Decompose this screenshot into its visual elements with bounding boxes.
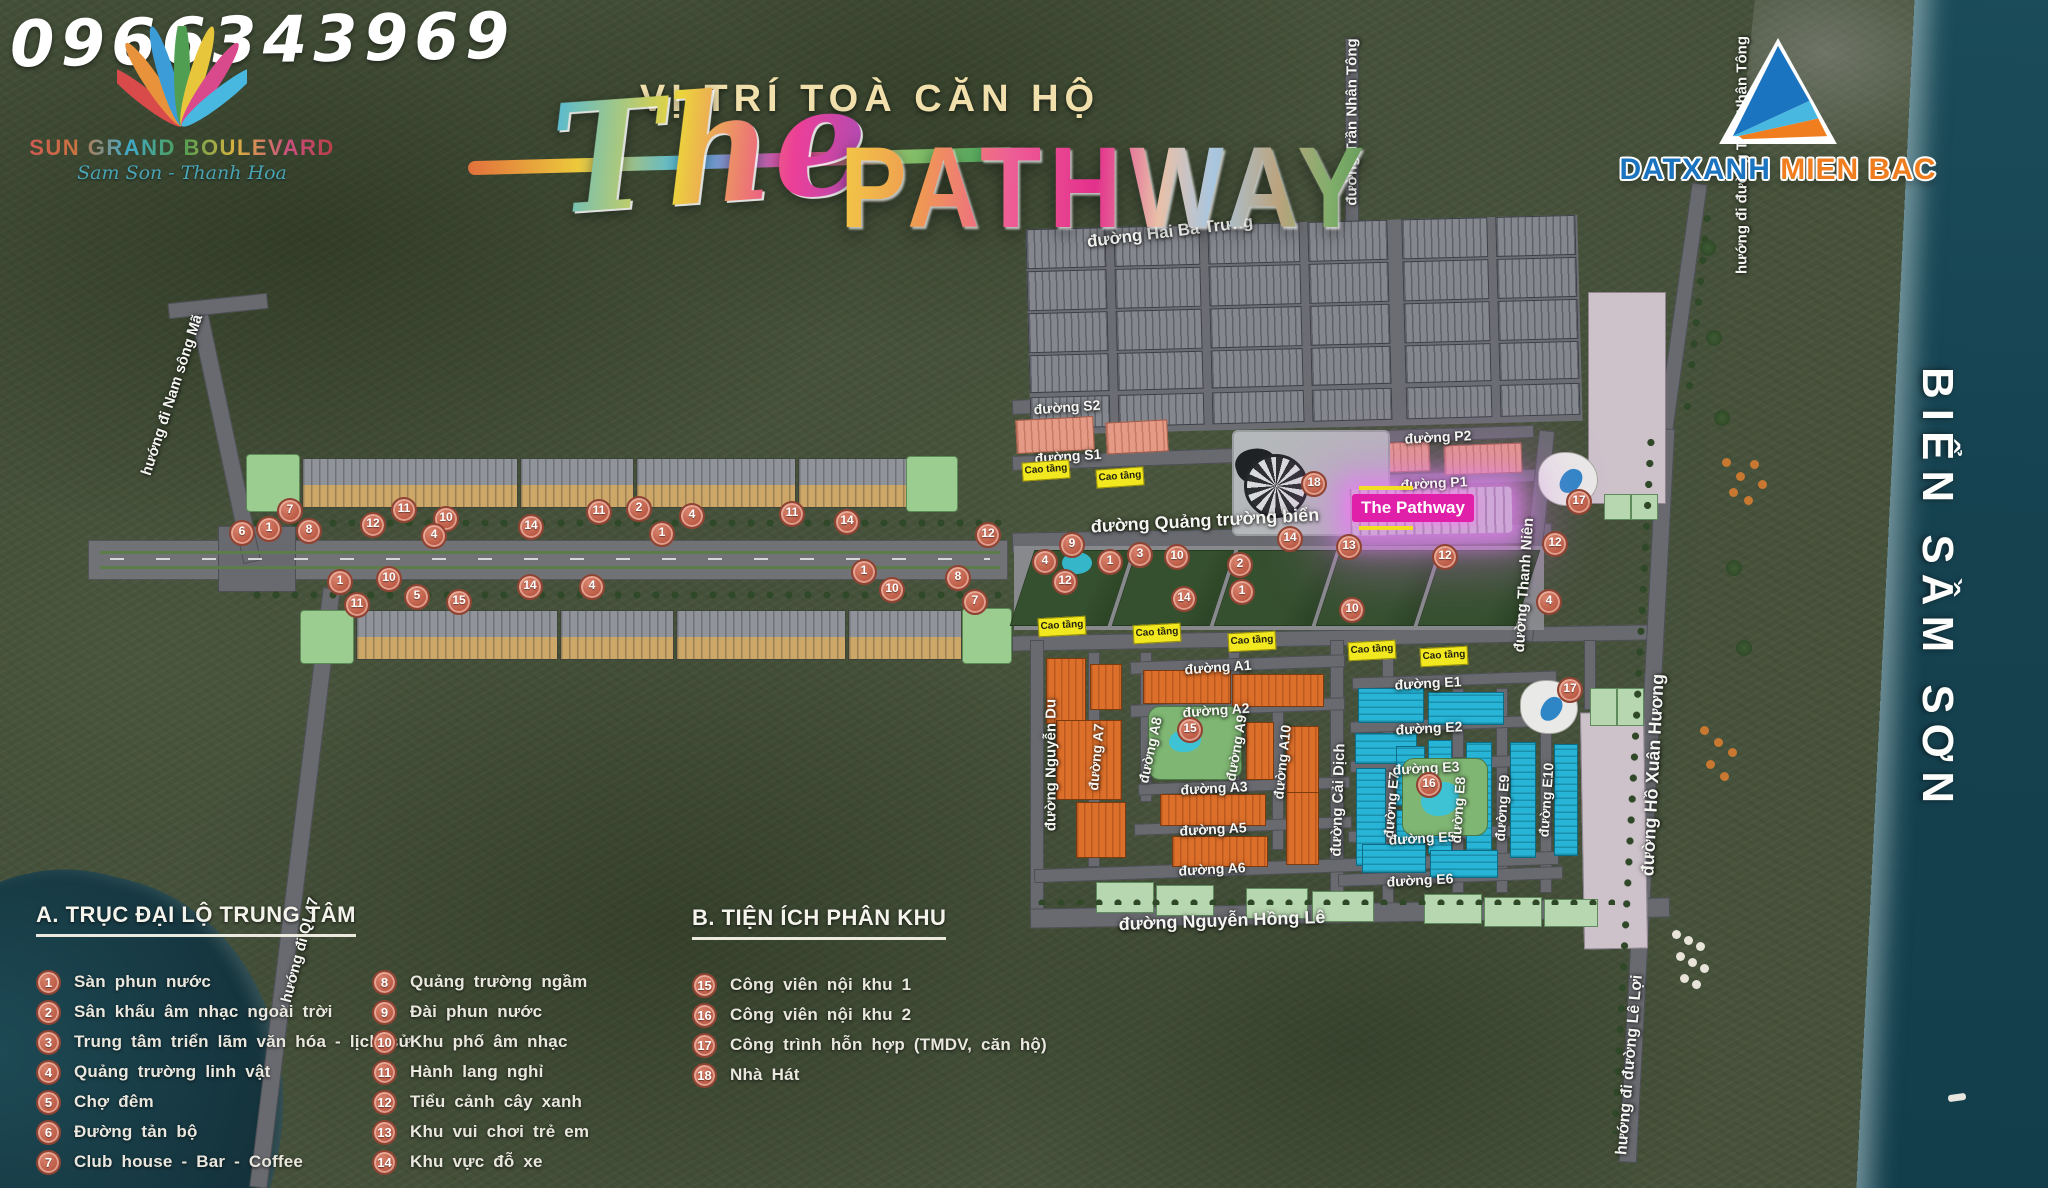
road [167,293,268,319]
legend-item-number: 15 [692,973,717,998]
legend-item: 16Công viên nội khu 2 [692,1000,1047,1030]
map-marker-14: 14 [518,514,544,540]
map-marker-10: 10 [1164,544,1190,570]
street-label: đường Cải Dịch [1328,743,1349,857]
legend-item-label: Đài phun nước [410,1002,542,1022]
map-marker-7: 7 [962,589,988,615]
legend-item: 6Đường tản bộ [36,1117,372,1147]
cbl [1358,688,1424,723]
beach-umbrella [1729,488,1738,497]
bld [798,458,908,508]
the-pathway-badge: The Pathway [1352,494,1474,522]
tl-h [1035,896,1615,905]
beach-umbrella [1720,772,1729,781]
gbl [1590,688,1617,726]
map-marker-17: 17 [1566,489,1592,515]
gray-block [1208,264,1301,306]
legend-item-label: Sàn phun nước [74,972,211,992]
street-label: đường E6 [1386,870,1454,889]
legend-item-label: Quảng trường linh vật [74,1062,270,1082]
map-marker-6: 6 [229,520,255,546]
map-marker-1: 1 [851,559,877,585]
cao-tang-label: Cao tầng [1133,623,1182,644]
beach-umbrella [1688,958,1697,967]
sun-grand-boulevard-logo: SUN GRAND BOULEVARD Sam Son - Thanh Hoa [22,26,342,184]
legend-item-number: 11 [372,1060,397,1085]
legend-a: A. TRỤC ĐẠI LỘ TRUNG TÂM 1Sàn phun nước2… [36,902,589,1177]
map-marker-11: 11 [779,501,805,527]
map-marker-12: 12 [1542,531,1568,557]
map-marker-1: 1 [649,521,675,547]
map-marker-4: 4 [579,574,605,600]
map-marker-4: 4 [679,503,705,529]
street-label: hướng đi Nam sông Mã [138,312,206,477]
gray-block [1403,301,1490,343]
gray-block [1211,348,1304,388]
legend-item-label: Công viên nội khu 1 [730,975,911,995]
map-marker-14: 14 [517,574,543,600]
park [962,608,1012,664]
legend-a-col2: 8Quảng trường ngầm9Đài phun nước10Khu ph… [372,967,589,1177]
shore-tree [1714,410,1730,426]
legend-item-number: 14 [372,1150,397,1175]
map-marker-1: 1 [1229,579,1255,605]
beach-umbrella [1680,974,1689,983]
cao-tang-label: Cao tầng [1038,616,1087,637]
legend-item: 2Sân khấu âm nhạc ngoài trời [36,997,372,1027]
legend-item-label: Chợ đêm [74,1092,154,1112]
cao-tang-label: Cao tầng [1348,640,1397,661]
map-marker-15: 15 [446,589,472,615]
map-marker-16: 16 [1416,772,1442,798]
gray-block [1114,267,1201,309]
map-marker-11: 11 [391,497,417,523]
legend-b-col1: 15Công viên nội khu 116Công viên nội khu… [692,970,1047,1090]
masterplan-poster: đường S2đường S1đường Hai Bà Trưngđường … [0,0,2048,1188]
legend-item-label: Club house - Bar - Coffee [74,1152,303,1172]
map-marker-9: 9 [1059,532,1085,558]
map-marker-12: 12 [975,522,1001,548]
map-marker-2: 2 [626,496,652,522]
beach-umbrella [1692,980,1701,989]
shore-tree [1736,640,1752,656]
map-marker-8: 8 [945,565,971,591]
median [100,551,1000,554]
bld [848,610,962,660]
gray-block [1405,343,1492,383]
legend-item: 18Nhà Hát [692,1060,1047,1090]
datxanh-text-2: MIEN BAC [1780,153,1936,186]
beach-umbrella [1722,458,1731,467]
map-marker-7: 7 [277,498,303,524]
legend-item-number: 13 [372,1120,397,1145]
park [906,456,958,512]
map-marker-1: 1 [1097,549,1123,575]
legend-item-label: Khu phố âm nhạc [410,1032,568,1052]
legend-item-label: Sân khấu âm nhạc ngoài trời [74,1002,333,1022]
legend-b: B. TIỆN ÍCH PHÂN KHU 15Công viên nội khu… [692,905,1047,1090]
legend-item-number: 10 [372,1030,397,1055]
map-marker-11: 11 [344,592,370,618]
map-marker-13: 13 [1336,534,1362,560]
gray-block [1496,257,1577,299]
sun-logo-tagline: Sam Son - Thanh Hoa [22,162,342,184]
legend-item: 14Khu vực đỗ xe [372,1147,589,1177]
beach-umbrella [1736,472,1745,481]
map-marker-4: 4 [421,523,447,549]
gray-block [1500,383,1581,417]
bld [676,610,846,660]
map-marker-5: 5 [404,584,430,610]
map-marker-3: 3 [1127,542,1153,568]
legend-item-number: 1 [36,970,61,995]
gray-block [1499,341,1580,381]
legend-item-label: Tiểu cảnh cây xanh [410,1092,582,1112]
salmon [1105,419,1169,454]
legend-item-label: Công trình hỗn hợp (TMDV, căn hộ) [730,1035,1047,1055]
cbl [1554,744,1578,856]
sun-logo-fan-icon [117,26,247,130]
beach-umbrella [1700,964,1709,973]
legend-a-col1: 1Sàn phun nước2Sân khấu âm nhạc ngoài tr… [36,967,372,1177]
beach-umbrella [1672,930,1681,939]
legend-item-number: 4 [36,1060,61,1085]
legend-item: 13Khu vui chơi trẻ em [372,1117,589,1147]
gray-block [1210,306,1303,348]
obl [1246,722,1274,780]
title-pathway: PATHWAY [840,131,1372,246]
map-marker-2: 2 [1227,552,1253,578]
legend-b-title: B. TIỆN ÍCH PHÂN KHU [692,905,946,940]
legend-item-label: Nhà Hát [730,1065,800,1085]
gray-block [1212,390,1305,424]
gray-block [1026,269,1107,311]
legend-item-number: 3 [36,1030,61,1055]
sea-label: BIỂN SẦM SƠN [1910,300,1962,880]
legend-item: 12Tiểu cảnh cây xanh [372,1087,589,1117]
legend-item-label: Khu vui chơi trẻ em [410,1122,589,1142]
gray-block [1117,351,1204,391]
datxanh-text-1: DATXANH [1619,153,1770,186]
beach-umbrella [1676,952,1685,961]
legend-item-number: 6 [36,1120,61,1145]
map-marker-12: 12 [360,512,386,538]
legend-item: 17Công trình hỗn hợp (TMDV, căn hộ) [692,1030,1047,1060]
legend-item: 7Club house - Bar - Coffee [36,1147,372,1177]
bld [560,610,674,660]
legend-item-number: 18 [692,1063,717,1088]
legend-item-number: 7 [36,1150,61,1175]
map-marker-1: 1 [256,516,282,542]
map-marker-10: 10 [1339,597,1365,623]
legend-item: 5Chợ đêm [36,1087,372,1117]
map-marker-17: 17 [1557,677,1583,703]
legend-item: 15Công viên nội khu 1 [692,970,1047,1000]
legend-item-number: 2 [36,1000,61,1025]
beach-umbrella [1750,460,1759,469]
sun-logo-name: SUN GRAND BOULEVARD [22,135,342,161]
legend-item: 8Quảng trường ngầm [372,967,589,997]
legend-item-number: 8 [372,970,397,995]
bld [636,458,796,508]
gray-block [1497,299,1578,341]
obl [1090,664,1122,710]
cbl [1510,742,1536,858]
gray-block [1029,353,1110,393]
cao-tang-label: Cao tầng [1420,646,1469,667]
legend-item-label: Công viên nội khu 2 [730,1005,911,1025]
map-marker-14: 14 [1171,586,1197,612]
street-label: đường Nguyễn Du [1043,699,1060,831]
shore-tree [1700,240,1716,256]
legend-item-label: Đường tản bộ [74,1122,198,1142]
legend-item-number: 9 [372,1000,397,1025]
gray-block [1312,388,1393,422]
datxanh-logo-text: DATXANH MIEN BAC [1608,153,1948,187]
cao-tang-label: Cao tầng [1021,459,1070,481]
obl [1286,792,1319,865]
map-marker-10: 10 [376,566,402,592]
title-script-the: The [547,57,874,244]
map-marker-8: 8 [296,518,322,544]
legend-item: 1Sàn phun nước [36,967,372,997]
park [300,610,354,664]
map-marker-4: 4 [1536,589,1562,615]
map-marker-12: 12 [1052,569,1078,595]
legend-item: 10Khu phố âm nhạc [372,1027,589,1057]
gray-block [1401,217,1488,259]
legend-item-number: 17 [692,1033,717,1058]
shore-tree [1726,560,1742,576]
gray-block [1402,259,1489,301]
map-marker-1: 1 [327,569,353,595]
page-title: VỊ TRÍ TOÀ CĂN HỘ The PATHWAY [440,78,1440,121]
shore-tree [1706,330,1722,346]
obl [1076,802,1126,858]
legend-item-label: Hành lang nghỉ [410,1062,544,1082]
legend-item: 3Trung tâm triển lãm văn hóa - lịch sử [36,1027,372,1057]
map-marker-14: 14 [1277,526,1303,552]
map-marker-18: 18 [1301,471,1327,497]
legend-item-number: 5 [36,1090,61,1115]
map-marker-11: 11 [586,499,612,525]
legend-item-label: Quảng trường ngầm [410,972,587,992]
gbl [1604,494,1631,520]
cbl [1362,844,1426,873]
legend-item-label: Khu vực đỗ xe [410,1152,543,1172]
gray-block [1310,304,1391,346]
map-marker-10: 10 [879,577,905,603]
legend-item: 11Hành lang nghỉ [372,1057,589,1087]
map-marker-15: 15 [1177,717,1203,743]
salmon [1444,443,1523,476]
legend-item-label: Trung tâm triển lãm văn hóa - lịch sử [74,1032,411,1052]
beach-umbrella [1714,738,1723,747]
gray-block [1495,215,1576,257]
cao-tang-label: Cao tầng [1095,466,1144,488]
map-marker-14: 14 [834,509,860,535]
gray-block [1311,346,1392,386]
beach-umbrella [1684,936,1693,945]
beach-umbrella [1728,748,1737,757]
bld [520,458,634,508]
gray-block [1116,309,1203,351]
gray-block [1308,262,1389,304]
beach-umbrella [1696,942,1705,951]
map-marker-4: 4 [1032,549,1058,575]
cao-tang-label: Cao tầng [1228,631,1277,652]
gray-block [1028,311,1109,353]
beach-umbrella [1700,726,1709,735]
gray-block [1406,385,1493,419]
beach-umbrella [1758,480,1767,489]
beach-umbrella [1706,760,1715,769]
legend-item: 4Quảng trường linh vật [36,1057,372,1087]
datxanh-triangle-icon [1719,38,1837,146]
datxanh-mien-bac-logo: DATXANH MIEN BAC [1608,38,1948,187]
legend-item-number: 16 [692,1003,717,1028]
legend-a-title: A. TRỤC ĐẠI LỘ TRUNG TÂM [36,902,356,937]
bld [356,610,558,660]
legend-item: 9Đài phun nước [372,997,589,1027]
map-marker-12: 12 [1432,544,1458,570]
legend-item-number: 12 [372,1090,397,1115]
beach-umbrella [1744,496,1753,505]
